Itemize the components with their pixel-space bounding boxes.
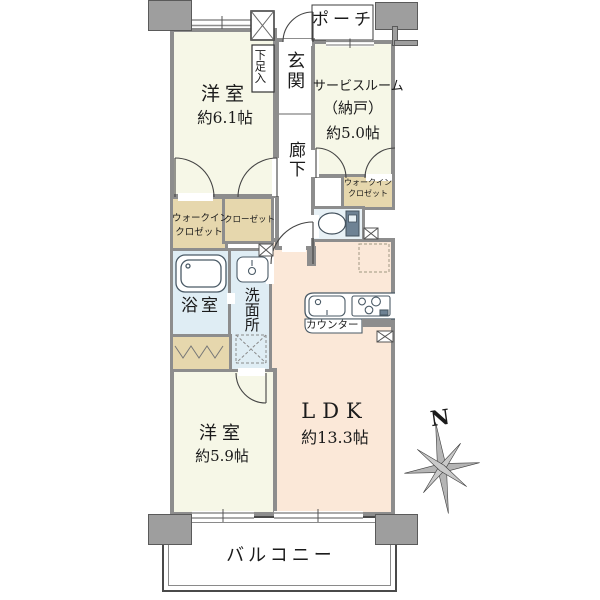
room-ldk (268, 238, 395, 516)
wic-right-line2: クロゼット (343, 190, 393, 199)
building-block-top-left (148, 0, 192, 31)
wall-stub-right-2 (394, 40, 418, 46)
porch-label: ポーチ (312, 11, 374, 30)
washroom-label: 洗面所 (243, 287, 260, 332)
bedroom2-name: 洋室 (172, 424, 272, 444)
service-room-sub: （納戸） (313, 100, 393, 117)
ldk-size: 約13.3帖 (293, 429, 377, 447)
wic-right-line1: ウォークイン (343, 179, 393, 188)
balcony-label: バルコニー (200, 546, 362, 566)
closet-label: クローゼット (224, 216, 272, 226)
shoe-cabinet-label: 下足入 (254, 49, 267, 84)
wic-left-line2: クロゼット (172, 228, 226, 239)
ldk-name: LDK (295, 400, 375, 424)
north-compass-icon (392, 416, 492, 519)
service-room-name: サービスルーム (313, 80, 393, 95)
wic-left-line1: ウォークイン (172, 214, 226, 225)
floor-plan: ポーチ 玄関 下足入 廊下 洋室 約6.1帖 サービスルーム （納戸） 約5.0… (0, 0, 600, 600)
entrance-label: 玄関 (284, 51, 304, 91)
room-storage-fold (170, 334, 232, 372)
bedroom1-name: 洋室 (175, 84, 275, 105)
pillar-bottom-right (375, 514, 418, 545)
room-wic-left (170, 196, 228, 254)
room-toilet (311, 206, 365, 242)
bedroom2-size: 約5.9帖 (172, 448, 272, 465)
north-label: N (423, 404, 458, 432)
pillar-bottom-left (148, 514, 192, 545)
room-bathroom (170, 248, 232, 338)
bathroom-label: 浴室 (172, 297, 230, 316)
hallway-label: 廊下 (285, 141, 304, 179)
bedroom1-size: 約6.1帖 (175, 110, 275, 127)
counter-label: カウンター (306, 320, 358, 332)
service-room-size: 約5.0帖 (313, 125, 393, 142)
